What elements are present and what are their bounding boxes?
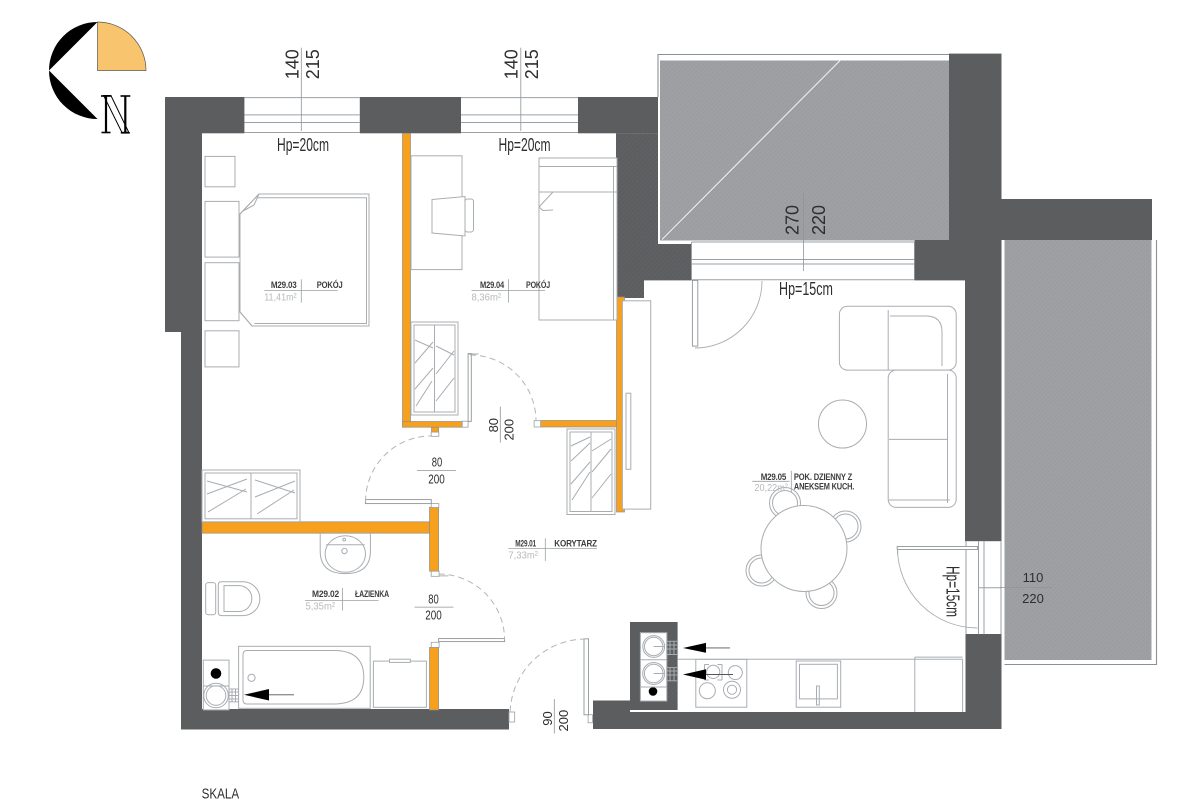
svg-text:Hp=15cm: Hp=15cm bbox=[943, 566, 963, 617]
svg-text:POKÓJ: POKÓJ bbox=[317, 279, 343, 290]
svg-text:M29.01: M29.01 bbox=[515, 538, 536, 548]
svg-text:Hp=20cm: Hp=20cm bbox=[499, 135, 551, 155]
svg-text:200: 200 bbox=[502, 419, 517, 441]
svg-text:220: 220 bbox=[809, 205, 829, 235]
svg-text:SKALA: SKALA bbox=[202, 785, 240, 800]
svg-text:20,22m²: 20,22m² bbox=[754, 483, 788, 494]
svg-text:200: 200 bbox=[556, 710, 571, 732]
svg-text:5,35m²: 5,35m² bbox=[306, 601, 336, 612]
svg-text:80: 80 bbox=[432, 455, 443, 470]
svg-text:POKÓJ: POKÓJ bbox=[526, 279, 550, 290]
svg-text:M29.02: M29.02 bbox=[312, 589, 339, 599]
svg-text:ANEKSEM KUCH.: ANEKSEM KUCH. bbox=[794, 482, 854, 492]
svg-text:POK. DZIENNY Z: POK. DZIENNY Z bbox=[794, 472, 853, 482]
svg-text:Hp=15cm: Hp=15cm bbox=[779, 279, 833, 299]
svg-text:M29.05: M29.05 bbox=[761, 472, 787, 482]
svg-text:11,41m²: 11,41m² bbox=[264, 292, 297, 303]
svg-text:215: 215 bbox=[303, 49, 323, 79]
svg-text:ŁAZIENKA: ŁAZIENKA bbox=[355, 589, 390, 599]
svg-text:110: 110 bbox=[1023, 570, 1044, 585]
svg-text:7,33m²: 7,33m² bbox=[508, 551, 538, 562]
svg-text:8,36m²: 8,36m² bbox=[472, 292, 502, 303]
svg-text:270: 270 bbox=[783, 205, 803, 235]
svg-text:215: 215 bbox=[522, 49, 542, 79]
svg-text:KORYTARZ: KORYTARZ bbox=[554, 538, 597, 548]
svg-text:140: 140 bbox=[501, 49, 521, 79]
svg-text:200: 200 bbox=[428, 472, 445, 487]
svg-text:140: 140 bbox=[282, 49, 302, 79]
svg-text:80: 80 bbox=[486, 418, 501, 432]
svg-text:Hp=20cm: Hp=20cm bbox=[277, 135, 329, 155]
svg-text:200: 200 bbox=[425, 608, 442, 623]
svg-text:220: 220 bbox=[1022, 591, 1044, 606]
svg-text:M29.03: M29.03 bbox=[271, 280, 297, 290]
svg-text:90: 90 bbox=[540, 711, 555, 725]
svg-text:80: 80 bbox=[428, 591, 439, 606]
svg-text:M29.04: M29.04 bbox=[480, 280, 504, 290]
